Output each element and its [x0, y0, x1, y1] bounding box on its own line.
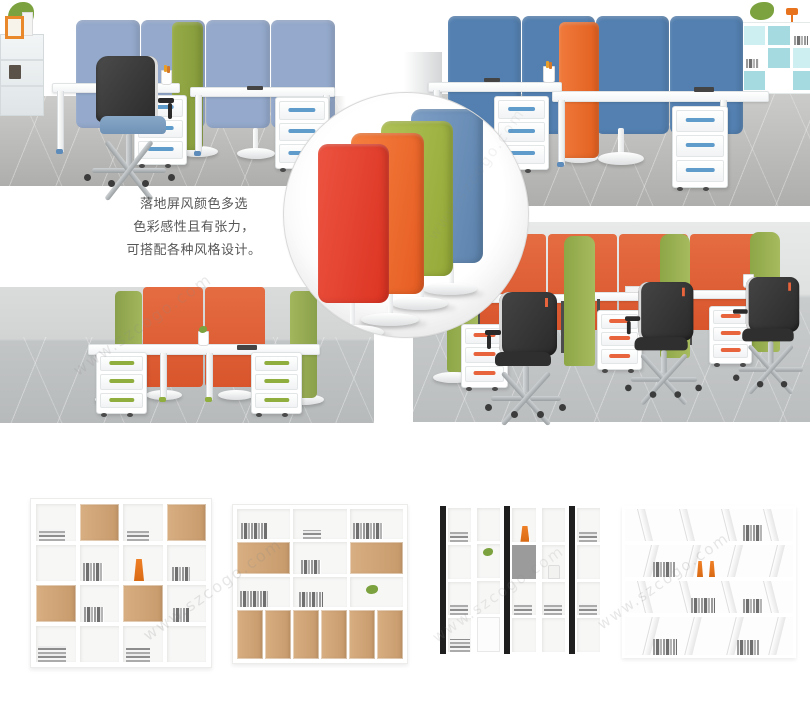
tablet-on-desk — [694, 87, 714, 92]
chair-arm-post — [627, 321, 631, 334]
books — [353, 523, 383, 539]
pencils — [546, 61, 549, 68]
shelf-tower — [540, 506, 567, 654]
chair-back — [96, 56, 158, 122]
chair-caster — [537, 411, 544, 418]
books — [38, 646, 66, 662]
books — [579, 603, 597, 615]
chair-seat — [495, 352, 551, 366]
desk-foot — [205, 397, 212, 402]
chair-caster — [559, 404, 566, 411]
shelf-tower — [569, 506, 602, 654]
wood-slider-panel — [350, 542, 403, 574]
mobile-pedestal — [251, 352, 302, 414]
cube-cell — [768, 48, 789, 67]
chair-caster — [757, 381, 763, 387]
mobile-pedestal — [672, 106, 728, 188]
wood-door — [80, 504, 120, 541]
items — [303, 530, 321, 539]
plant-sprig — [199, 326, 207, 333]
chair-stem — [768, 341, 774, 363]
shelf-cell — [167, 545, 207, 582]
shelf-cell — [293, 509, 346, 539]
drawer — [100, 374, 143, 389]
chair-seat — [742, 329, 794, 342]
partition-panel-blue — [596, 16, 669, 134]
books — [172, 567, 190, 581]
shelf-cell — [542, 618, 565, 652]
cube-cell — [744, 48, 765, 67]
drawer — [255, 393, 298, 408]
books — [126, 648, 150, 662]
books — [743, 525, 763, 541]
shelf-cell — [350, 577, 403, 607]
cube-cell — [744, 71, 765, 90]
books — [299, 592, 323, 607]
drawer — [676, 160, 724, 182]
desk-leg — [160, 353, 167, 400]
books — [653, 639, 677, 655]
cube-cell — [768, 26, 789, 45]
task-chair — [625, 282, 720, 402]
shelf-cell — [237, 577, 290, 607]
table-base-disc — [218, 390, 254, 400]
floor-screen-red — [318, 144, 389, 303]
books — [514, 604, 532, 615]
desk-foot — [557, 162, 564, 167]
chair-arm-post — [487, 335, 491, 349]
chair-stem — [126, 134, 132, 166]
shelf-cell — [350, 509, 403, 539]
shelf-cell — [80, 585, 120, 622]
chair-armrest — [733, 309, 748, 314]
chair-caster — [142, 180, 149, 187]
books — [240, 591, 268, 607]
drawer-box — [477, 617, 500, 652]
product-promo-image: 落地屏风颜色多选 色彩感性且有张力， 可搭配各种风格设计。 — [0, 0, 810, 705]
books — [450, 639, 470, 652]
chair-stem — [661, 350, 667, 373]
wood-door — [377, 610, 403, 659]
shelf-cell — [36, 545, 76, 582]
door-row — [237, 610, 403, 659]
caption-block: 落地屏风颜色多选 色彩感性且有张力， 可搭配各种风格设计。 — [104, 193, 284, 262]
caption-line-3: 可搭配各种风格设计。 — [104, 239, 284, 262]
shelf-row — [237, 509, 403, 539]
cube-cell — [744, 26, 765, 45]
chair-caster — [168, 174, 175, 181]
chair-stem — [523, 366, 529, 392]
shelf-cell — [577, 582, 600, 616]
small-plant — [483, 548, 493, 556]
side-cabinet — [0, 34, 44, 116]
orange-lamp-stem — [791, 15, 793, 22]
wood-door — [167, 504, 207, 541]
shelf-tower — [475, 506, 502, 654]
drawer — [279, 101, 325, 120]
desk-accessory — [247, 86, 263, 90]
books — [450, 532, 468, 542]
books — [691, 598, 715, 613]
shelf-cell — [80, 626, 120, 663]
chair-seat — [100, 116, 166, 134]
caption-line-1: 落地屏风颜色多选 — [104, 193, 284, 216]
shelf-cell — [167, 626, 207, 663]
books — [746, 59, 759, 68]
shelf-cell — [80, 545, 120, 582]
cube-cell — [793, 71, 810, 90]
zigzag-divider — [763, 581, 779, 613]
chair-caster — [511, 411, 518, 418]
cube-cell — [768, 71, 789, 90]
chair-orange-accent — [788, 283, 791, 291]
shelf-cell — [542, 508, 565, 542]
cube-cell — [793, 26, 810, 45]
desk-top — [552, 91, 769, 102]
zigzag-divider — [637, 509, 653, 541]
caption-line-2: 色彩感性且有张力， — [104, 216, 284, 239]
table-base-disc — [237, 148, 275, 159]
screen-base-disc — [423, 283, 477, 295]
books-on-cabinet — [9, 65, 21, 79]
shelf-cell — [512, 508, 535, 542]
desk-leg — [558, 100, 565, 165]
chair-caster — [781, 381, 787, 387]
bottles — [241, 523, 267, 539]
shelf-cell — [577, 545, 600, 579]
bookcase-wood-doors — [232, 504, 408, 664]
zigzag-divider — [769, 545, 785, 577]
wood-door — [36, 585, 76, 622]
chair-back — [746, 277, 799, 332]
wood-door — [237, 610, 263, 659]
orange-vase — [134, 559, 144, 581]
books — [794, 36, 808, 45]
chair-caster — [733, 375, 739, 381]
wood-door — [349, 610, 375, 659]
chair-caster — [650, 391, 657, 398]
table-stem — [253, 128, 258, 150]
shelf-cell — [293, 542, 346, 574]
chair-arm-post — [168, 103, 172, 119]
books — [737, 640, 759, 655]
desk-leg — [206, 353, 213, 400]
shelf-cell — [36, 504, 76, 541]
orange-box — [520, 526, 529, 542]
wood-door — [321, 610, 347, 659]
zigzag-row — [625, 617, 793, 655]
shelf-cell — [123, 504, 163, 541]
orange-picture-frame — [5, 16, 24, 39]
chair-back — [499, 292, 557, 356]
plant-leaves — [750, 2, 774, 20]
flowers — [366, 585, 378, 594]
zigzag-divider — [768, 617, 785, 655]
desk-foot — [56, 149, 63, 154]
drawer — [676, 135, 724, 157]
zigzag-divider — [721, 581, 737, 613]
plant-cup — [198, 331, 209, 346]
books — [84, 607, 104, 622]
screen-base-disc — [361, 313, 419, 326]
chair-seat — [635, 337, 688, 350]
shelf-cell — [477, 508, 500, 541]
bottles — [301, 560, 321, 574]
drawer — [676, 110, 724, 132]
chair-orange-accent — [545, 298, 548, 307]
zigzag-divider — [763, 509, 779, 541]
chair-caster — [674, 391, 681, 398]
books — [743, 599, 763, 613]
task-chair — [485, 292, 585, 422]
shelf-cell — [293, 577, 346, 607]
wood-door — [265, 610, 291, 659]
chair-caster — [485, 404, 492, 411]
books — [579, 531, 597, 542]
zigzag-divider — [679, 509, 695, 541]
desk-top — [428, 82, 562, 92]
scene-bottom-left-bench — [0, 287, 374, 423]
power-module — [237, 345, 257, 350]
cube-cell — [793, 48, 810, 67]
shelf-cell — [237, 509, 290, 539]
orange-lamp — [786, 8, 798, 15]
shelf-cell — [123, 545, 163, 582]
zigzag-divider — [727, 545, 743, 577]
drawer — [100, 393, 143, 408]
wood-door — [293, 610, 319, 659]
desk-foot — [159, 397, 166, 402]
drawer — [255, 374, 298, 389]
chair-armrest — [158, 98, 174, 103]
table-base-disc — [598, 152, 644, 165]
shelf-cell — [577, 508, 600, 542]
shelf-cell — [36, 626, 76, 663]
zigzag-row — [625, 509, 793, 541]
chair-caster — [108, 180, 115, 187]
shelf-cell — [448, 545, 471, 579]
cabinet-shelf-line — [1, 59, 43, 61]
screen-base-disc — [324, 325, 384, 338]
zigzag-divider — [684, 617, 701, 655]
shelf-cell — [477, 544, 500, 577]
chair-caster — [625, 385, 632, 392]
chair-caster — [84, 174, 91, 181]
partition-panel-blue — [206, 20, 270, 128]
cabinet-shelf-line — [1, 85, 43, 87]
office-chair — [78, 54, 198, 186]
books — [83, 563, 103, 581]
shelf-cell — [512, 618, 535, 652]
teal-cube-bookshelf — [740, 22, 810, 94]
desk-accessory — [484, 78, 500, 82]
task-chair — [733, 277, 810, 391]
books — [127, 531, 149, 541]
books — [39, 529, 65, 541]
table-stem — [618, 128, 624, 154]
books — [544, 603, 562, 615]
bookshelf-wood-accent-grid — [30, 498, 212, 668]
shelf-cell — [542, 582, 565, 616]
desk-leg — [57, 91, 64, 152]
pencil-cup — [543, 66, 555, 83]
drawer — [255, 356, 298, 371]
shelf-row — [237, 577, 403, 607]
screen-base-disc — [392, 297, 448, 310]
color-options-circle — [283, 92, 529, 338]
floor-screen-orange — [559, 22, 599, 158]
chair-back — [638, 282, 693, 341]
chair-orange-accent — [682, 288, 685, 297]
chair-caster — [695, 385, 702, 392]
orange-bookend — [709, 561, 715, 577]
shelf-cell — [448, 508, 471, 542]
